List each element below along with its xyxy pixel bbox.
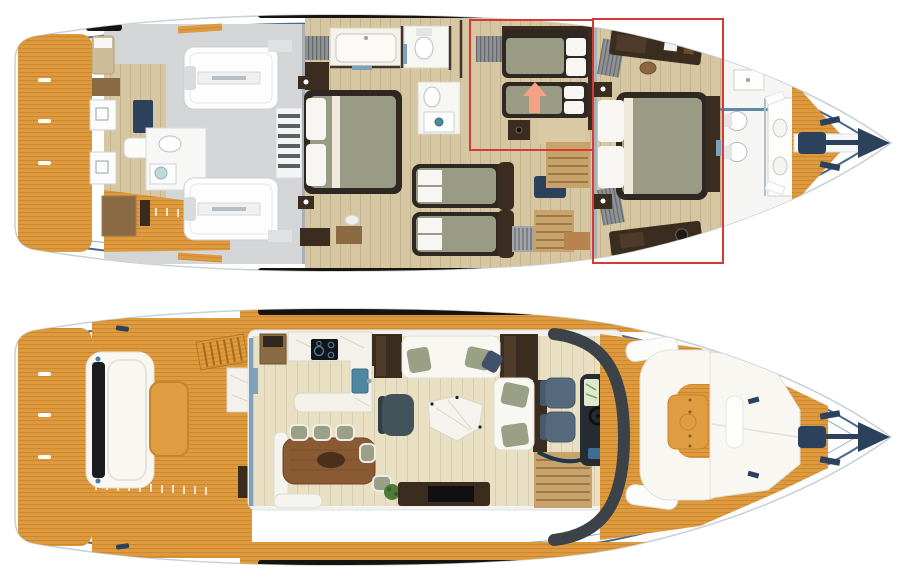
sliding-door xyxy=(403,44,407,64)
settee xyxy=(300,228,330,246)
aft-glass-door xyxy=(249,338,253,506)
toilet xyxy=(415,37,433,59)
port-engine xyxy=(184,47,278,109)
basin xyxy=(435,118,443,126)
dining-chair xyxy=(360,444,375,462)
lower-swim-platform xyxy=(18,34,92,252)
main-deck-plan xyxy=(15,306,891,568)
cistern xyxy=(416,28,432,36)
table-centerpiece xyxy=(317,452,345,468)
folded-table xyxy=(92,362,105,478)
engine-room-ladder xyxy=(276,108,302,178)
twin-vanity xyxy=(768,98,794,196)
faucet xyxy=(367,379,372,384)
lamp xyxy=(304,80,309,85)
boarding-steps xyxy=(102,196,136,236)
dining-chair xyxy=(313,425,331,440)
cooktop xyxy=(311,339,338,360)
cleat xyxy=(98,20,112,26)
vent-grille xyxy=(268,230,292,242)
windlass xyxy=(798,132,826,154)
faucet xyxy=(364,36,368,40)
pillow xyxy=(306,144,326,186)
dining-chair xyxy=(290,425,308,440)
chartplotter-screen xyxy=(584,379,599,406)
transom-seat xyxy=(86,352,154,488)
side-deck-sliver xyxy=(540,265,620,271)
glass-partition xyxy=(720,108,768,111)
boarding-gate xyxy=(140,200,150,226)
sheet-fold xyxy=(624,98,633,194)
main-swim-platform xyxy=(18,328,92,546)
dining-bench xyxy=(274,494,322,508)
sunpad-bolster xyxy=(726,396,743,448)
lamp xyxy=(601,199,606,204)
vent-grille xyxy=(268,40,292,52)
bench-seat xyxy=(305,36,329,60)
bulkhead xyxy=(594,20,597,263)
lamp xyxy=(304,200,309,205)
pillow xyxy=(306,98,326,140)
helm-seat xyxy=(545,412,575,442)
cleat xyxy=(98,261,112,267)
lamp xyxy=(601,87,606,92)
starboard-engine xyxy=(184,178,278,240)
side-door xyxy=(253,368,258,394)
basin xyxy=(773,157,787,175)
pillow xyxy=(598,146,624,188)
crew-bunk-pillow xyxy=(94,38,112,48)
windlass xyxy=(798,426,826,448)
stair-landing xyxy=(538,116,586,144)
cabinet xyxy=(564,232,590,250)
radiator-cabinet xyxy=(512,226,534,252)
stool xyxy=(345,215,359,225)
bow-table xyxy=(668,395,708,449)
dining-chair xyxy=(336,425,354,440)
sliding-door xyxy=(352,66,372,70)
wall xyxy=(724,232,783,250)
forward-bathroom xyxy=(720,38,796,250)
galley-sink xyxy=(352,369,368,393)
glass-wall xyxy=(764,98,766,196)
tv-console xyxy=(428,486,474,502)
speaker xyxy=(516,127,522,133)
lower-deck-interior xyxy=(18,11,890,275)
vanity-chair xyxy=(640,62,656,74)
helm-seat xyxy=(545,378,575,408)
floorplan-canvas xyxy=(0,0,920,575)
basin xyxy=(773,119,787,137)
plant xyxy=(384,484,400,500)
anchor-chain xyxy=(826,140,862,145)
cockpit-table xyxy=(150,382,188,456)
cushion xyxy=(406,346,432,373)
wardrobe xyxy=(476,36,502,62)
anchor-chain xyxy=(826,434,862,439)
pillow xyxy=(598,100,624,142)
yacht-floorplan-image xyxy=(0,0,920,575)
toilet xyxy=(424,87,440,107)
master-bed xyxy=(622,98,702,194)
foredeck xyxy=(554,334,890,540)
armchair xyxy=(382,394,414,436)
bathroom-door xyxy=(716,140,721,156)
wall xyxy=(724,38,783,56)
lower-deck-plan xyxy=(15,11,891,275)
toilet xyxy=(159,136,181,152)
vanity-desk xyxy=(336,226,362,244)
shower-drain xyxy=(155,167,167,179)
cushion xyxy=(501,422,530,447)
crew-shelf xyxy=(92,78,120,96)
bed-runner xyxy=(332,96,340,188)
